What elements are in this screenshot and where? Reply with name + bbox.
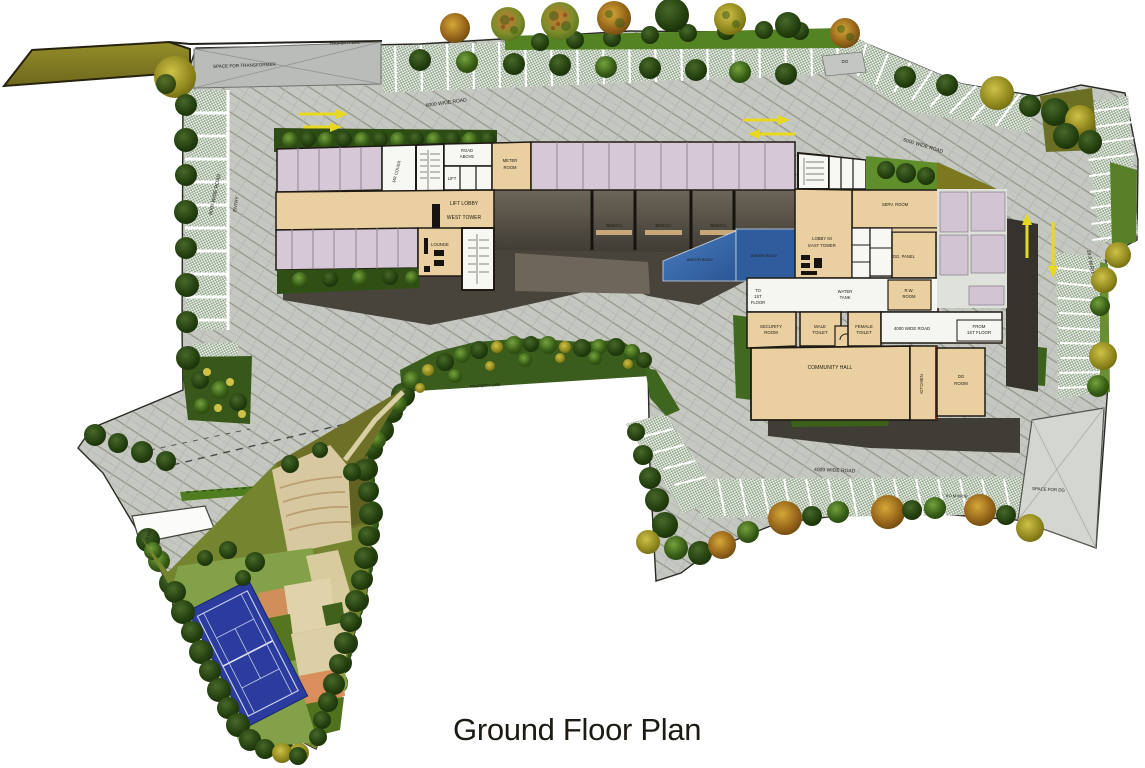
svg-text:WATER BODY: WATER BODY: [687, 257, 714, 262]
svg-text:FROM: FROM: [973, 324, 986, 329]
svg-text:WATER BODY: WATER BODY: [751, 253, 778, 258]
svg-text:ROOM: ROOM: [503, 165, 517, 170]
svg-text:METER: METER: [503, 158, 518, 163]
svg-text:ROOM: ROOM: [764, 330, 778, 335]
svg-text:BENCH: BENCH: [710, 223, 725, 228]
svg-text:SERV. ROOM: SERV. ROOM: [882, 202, 909, 207]
svg-text:ROOM: ROOM: [902, 294, 916, 299]
svg-text:LIFT: LIFT: [448, 176, 457, 181]
svg-text:TO: TO: [755, 288, 761, 293]
svg-text:LIFT LOBBY: LIFT LOBBY: [450, 201, 479, 207]
svg-text:R.W.: R.W.: [904, 288, 913, 293]
svg-text:1ST: 1ST: [754, 294, 762, 299]
svg-text:ROAD: ROAD: [461, 148, 473, 153]
svg-text:WEST TOWER: WEST TOWER: [447, 215, 482, 221]
svg-text:DG: DG: [842, 59, 849, 64]
svg-text:DG. PANEL: DG. PANEL: [893, 254, 916, 259]
svg-text:4000 WIDE ROAD: 4000 WIDE ROAD: [894, 326, 930, 331]
svg-text:SECURITY: SECURITY: [760, 324, 782, 329]
svg-text:LOUNGE: LOUNGE: [431, 242, 449, 247]
svg-text:ABOVE: ABOVE: [460, 154, 475, 159]
svg-text:COMMUNITY HALL: COMMUNITY HALL: [808, 365, 853, 371]
svg-text:TOILET: TOILET: [812, 330, 828, 335]
svg-text:TANK: TANK: [840, 295, 851, 300]
svg-text:DG: DG: [958, 374, 965, 379]
svg-text:Ground Floor Plan: Ground Floor Plan: [453, 712, 701, 747]
svg-text:LOBBY 04: LOBBY 04: [812, 236, 832, 241]
svg-text:BENCH: BENCH: [655, 223, 670, 228]
svg-text:EAST TOWER: EAST TOWER: [808, 243, 835, 248]
svg-text:WATER: WATER: [838, 289, 853, 294]
svg-text:FEMALE: FEMALE: [855, 324, 873, 329]
svg-text:1ST FLOOR: 1ST FLOOR: [967, 330, 991, 335]
svg-text:BENCH: BENCH: [606, 223, 621, 228]
svg-text:KITCHEN: KITCHEN: [919, 374, 924, 393]
svg-text:MALE: MALE: [814, 324, 826, 329]
svg-text:6.0 M WIDE: 6.0 M WIDE: [946, 493, 968, 499]
svg-text:ROOM: ROOM: [954, 381, 968, 386]
svg-text:TOILET: TOILET: [856, 330, 872, 335]
svg-text:FLOOR: FLOOR: [751, 300, 765, 305]
